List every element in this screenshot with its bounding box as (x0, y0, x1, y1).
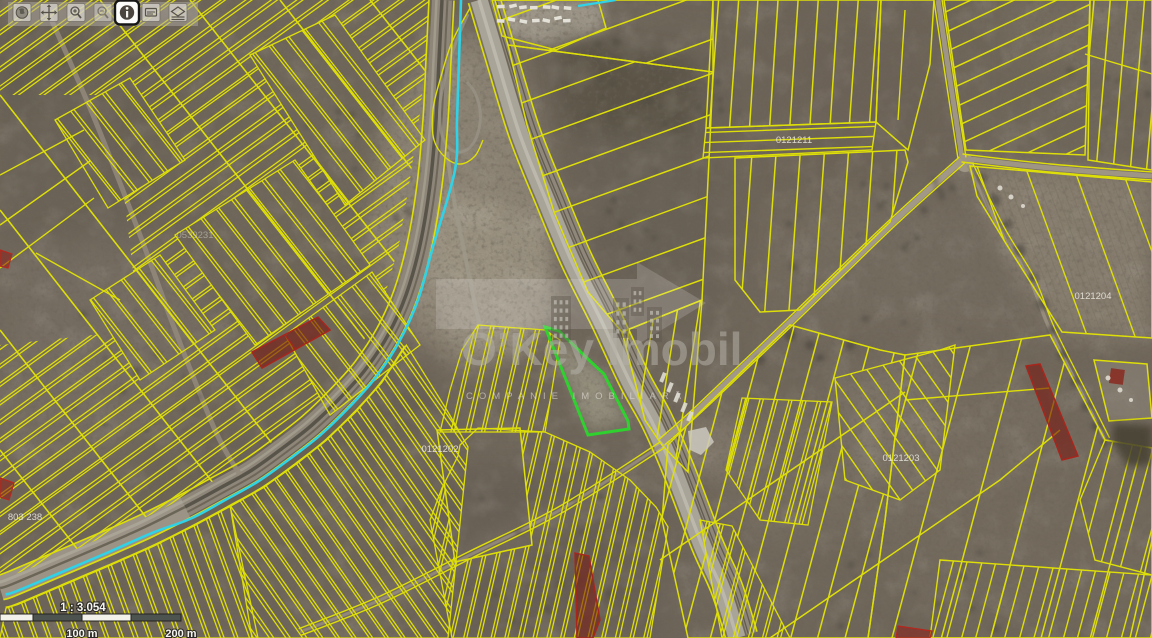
svg-text:803 238: 803 238 (8, 512, 42, 523)
svg-text:100 m: 100 m (66, 628, 97, 638)
svg-text:1 : 3.054: 1 : 3.054 (60, 602, 106, 614)
svg-text:0539231: 0539231 (177, 230, 214, 241)
svg-text:0121203: 0121203 (883, 453, 920, 464)
svg-text:COMPANIE IMOBILIARĂ: COMPANIE IMOBILIARĂ (466, 391, 687, 402)
svg-text:0121211: 0121211 (776, 135, 812, 146)
svg-text:0121202: 0121202 (422, 444, 459, 455)
svg-text:200 m: 200 m (165, 628, 196, 638)
svg-text:0121204: 0121204 (1075, 291, 1112, 302)
